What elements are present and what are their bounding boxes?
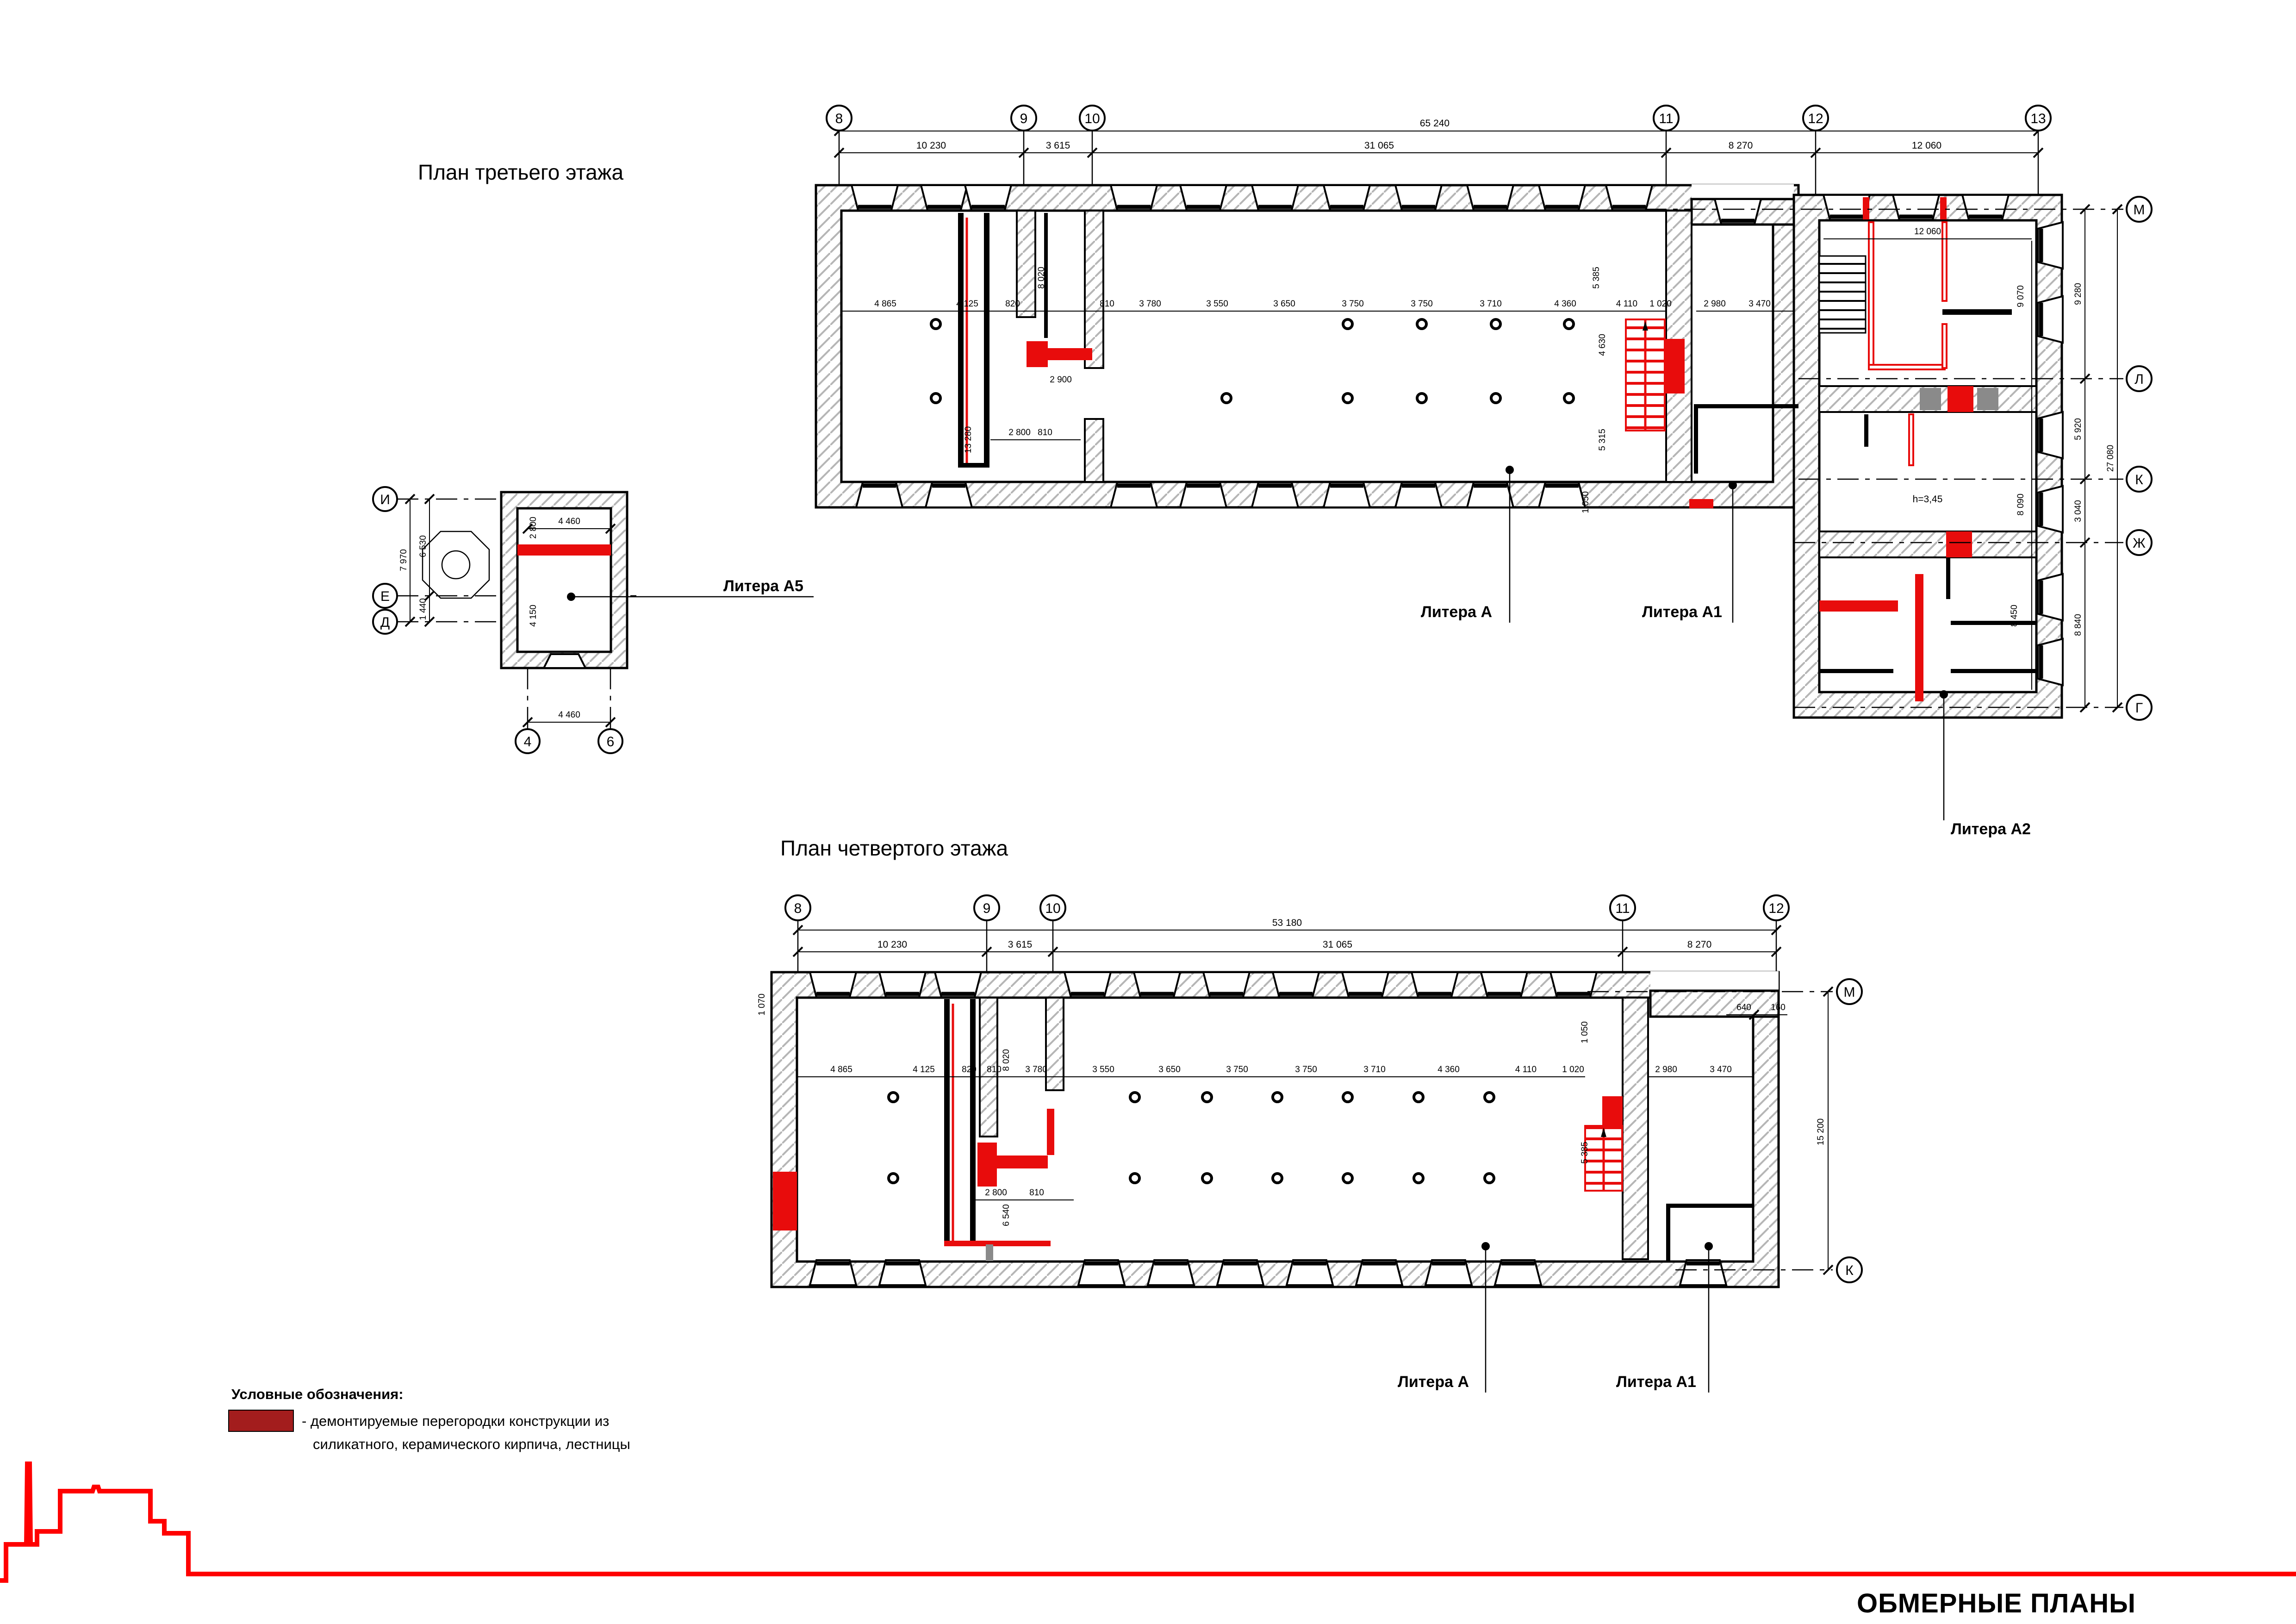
axis-bubble-label: И bbox=[380, 492, 390, 507]
axis-bubble-label: 6 bbox=[607, 734, 615, 750]
dim-text: 3 470 bbox=[1710, 1065, 1732, 1074]
dim-text: 3 750 bbox=[1295, 1065, 1317, 1074]
axis-bubble-label: 9 bbox=[1020, 111, 1028, 126]
dim-text: 640 bbox=[1736, 1003, 1751, 1012]
dim-text: 4 865 bbox=[874, 299, 896, 309]
dim-text: 3 750 bbox=[1342, 299, 1364, 309]
dim-text: 3 550 bbox=[1092, 1065, 1114, 1074]
demolition-wall bbox=[1027, 341, 1048, 367]
demolition-wall bbox=[1048, 348, 1092, 360]
drawing-sheet: План третьего этажа 65 240 10 230 3 615 … bbox=[0, 0, 2296, 1624]
measurement-plans-drawing: План третьего этажа 65 240 10 230 3 615 … bbox=[0, 0, 2296, 1624]
dim-text: 9 280 bbox=[2073, 283, 2083, 305]
dim-text: 4 865 bbox=[830, 1065, 852, 1074]
dim-text: 8 450 bbox=[2010, 605, 2019, 627]
dim-text: 1 050 bbox=[1581, 491, 1591, 513]
axis-bubble-label: 8 bbox=[835, 111, 843, 126]
dim-text: 4 110 bbox=[1515, 1065, 1537, 1074]
dim-text: 160 bbox=[1771, 1003, 1786, 1012]
axis-bubble-label: Г bbox=[2135, 700, 2143, 716]
axis-bubble-label: 9 bbox=[983, 901, 991, 916]
plan4-axis-bubbles-top: 8 9 10 11 12 bbox=[785, 895, 1789, 920]
axis-bubble-label: К bbox=[1845, 1263, 1854, 1278]
dim-text: 810 bbox=[1038, 428, 1052, 437]
dim-text: 65 240 bbox=[1420, 118, 1450, 129]
litera-a2-label: Литера А2 bbox=[1951, 820, 2031, 838]
axis-bubble-label: Е bbox=[380, 589, 390, 604]
dim-text: 3 650 bbox=[1158, 1065, 1181, 1074]
dim-text: 31 065 bbox=[1323, 939, 1352, 950]
dim-text: 820 bbox=[1005, 299, 1020, 309]
dim-text: 31 065 bbox=[1364, 140, 1394, 151]
dim-text: 4 460 bbox=[558, 517, 580, 526]
dim-text: 810 bbox=[1029, 1188, 1044, 1198]
dim-text: 10 230 bbox=[877, 939, 907, 950]
dim-text: 4 460 bbox=[558, 710, 580, 720]
demolition-wall bbox=[1602, 1096, 1623, 1126]
dim-text: 810 bbox=[1100, 299, 1114, 309]
dim-text: 3 550 bbox=[1206, 299, 1228, 309]
demolition-wall bbox=[1819, 600, 1898, 612]
plan3-walls bbox=[816, 184, 2062, 718]
gray-block bbox=[986, 1244, 993, 1261]
plan4-fourth-floor: План четвертого этажа 53 180 10 230 3 61… bbox=[757, 836, 1862, 1393]
plan3-title: План третьего этажа bbox=[418, 160, 623, 184]
chimney-octagon bbox=[423, 531, 489, 598]
dim-text: 27 080 bbox=[2106, 445, 2116, 472]
dim-text: 3 040 bbox=[2073, 500, 2083, 522]
legend-text: силикатного, керамического кирпича, лест… bbox=[313, 1436, 630, 1452]
axis-bubble-label: Л bbox=[2134, 372, 2144, 387]
dim-text: 13 280 bbox=[964, 426, 973, 453]
dim-text: 2 800 bbox=[1008, 428, 1031, 437]
dim-text: 3 470 bbox=[1748, 299, 1771, 309]
dim-text: 5 315 bbox=[1598, 429, 1607, 451]
legend-heading: Условные обозначения: bbox=[231, 1386, 404, 1402]
dim-text: 9 070 bbox=[2016, 285, 2026, 307]
dim-text: 5 920 bbox=[2073, 418, 2083, 440]
dim-text: 3 780 bbox=[1025, 1065, 1047, 1074]
demolition-wall bbox=[1689, 499, 1713, 508]
demolition-wall bbox=[944, 1241, 1051, 1246]
dim-text: 3 710 bbox=[1363, 1065, 1386, 1074]
axis-bubble-label: 11 bbox=[1659, 111, 1673, 126]
litera-a-label: Литера А bbox=[1421, 603, 1492, 621]
dim-text: 4 150 bbox=[529, 605, 538, 627]
axis-bubble-label: Д bbox=[380, 615, 390, 630]
dim-text: 3 780 bbox=[1139, 299, 1161, 309]
sheet-title: ОБМЕРНЫЕ ПЛАНЫ bbox=[1857, 1588, 2136, 1618]
demolition-wall bbox=[1915, 574, 1923, 701]
dim-text: 1 020 bbox=[1649, 299, 1672, 309]
plan3-third-floor: План третьего этажа 65 240 10 230 3 615 … bbox=[418, 106, 2152, 838]
demolition-wall bbox=[773, 1172, 797, 1230]
dim-text: 8 270 bbox=[1729, 140, 1753, 151]
demolition-wall bbox=[1946, 531, 1972, 557]
dim-text: 8 090 bbox=[2016, 493, 2026, 516]
dim-text: 3 710 bbox=[1480, 299, 1502, 309]
dim-text: 3 615 bbox=[1046, 140, 1070, 151]
height-note: h=3,45 bbox=[1913, 494, 1943, 505]
dim-text: 8 020 bbox=[1002, 1049, 1011, 1071]
dim-text: 6 530 bbox=[418, 535, 428, 557]
plan4-title: План четвертого этажа bbox=[780, 836, 1008, 860]
litera-a-label: Литера А bbox=[1398, 1373, 1469, 1391]
dim-text: 2 800 bbox=[985, 1188, 1007, 1198]
axis-bubble-label: 8 bbox=[794, 901, 802, 916]
dim-text: 3 615 bbox=[1008, 939, 1033, 950]
dim-text: 3 650 bbox=[1273, 299, 1295, 309]
dim-text: 8 020 bbox=[1037, 267, 1046, 289]
plan4-top-dimensions: 53 180 10 230 3 615 31 065 8 270 bbox=[793, 918, 1781, 956]
demolition-wall bbox=[517, 544, 611, 556]
demolition-wall bbox=[1665, 339, 1685, 394]
dim-text: 8 270 bbox=[1687, 939, 1712, 950]
dim-text: 3 750 bbox=[1226, 1065, 1248, 1074]
dim-text: 4 630 bbox=[1598, 334, 1607, 356]
dim-text: 4 360 bbox=[1554, 299, 1576, 309]
demolition-wall bbox=[1948, 386, 1973, 412]
dim-text: 12 060 bbox=[1912, 140, 1941, 151]
axis-bubble-label: 10 bbox=[1084, 111, 1100, 126]
litera-a1-label: Литера А1 bbox=[1616, 1373, 1696, 1391]
dim-text: 2 980 bbox=[1704, 299, 1726, 309]
dim-text: 8 840 bbox=[2073, 614, 2083, 636]
dim-text: 2 800 bbox=[529, 517, 538, 539]
dim-text: 6 540 bbox=[1002, 1204, 1011, 1226]
dim-text: 10 230 bbox=[916, 140, 946, 151]
demolition-wall bbox=[977, 1143, 997, 1187]
dim-text: 1 020 bbox=[1562, 1065, 1584, 1074]
legend-text: - демонтируемые перегородки конструкции … bbox=[302, 1413, 609, 1429]
dim-text: 7 970 bbox=[399, 549, 409, 571]
gray-block bbox=[1920, 388, 1941, 410]
stair bbox=[1819, 256, 1866, 333]
axis-bubble-label: 12 bbox=[1768, 901, 1784, 916]
axis-bubble-label: М bbox=[1844, 985, 1855, 1000]
demolition-wall bbox=[1047, 1109, 1054, 1155]
plan4-walls bbox=[772, 971, 1779, 1287]
demolition-wall bbox=[1863, 197, 1869, 219]
sheet-footer: ОБМЕРНЫЕ ПЛАНЫ bbox=[0, 1464, 2296, 1618]
legend-swatch bbox=[229, 1410, 293, 1431]
axis-bubble-label: 4 bbox=[524, 734, 532, 750]
demolition-wall bbox=[997, 1156, 1048, 1168]
dim-text: 4 110 bbox=[1616, 299, 1637, 309]
axis-bubble-label: 13 bbox=[2030, 111, 2046, 126]
axis-bubble-label: 12 bbox=[1808, 111, 1823, 126]
dim-text: 1 440 bbox=[418, 598, 428, 620]
dim-text: 810 bbox=[987, 1065, 1002, 1074]
legend: Условные обозначения: - демонтируемые пе… bbox=[229, 1386, 630, 1452]
dim-text: 3 750 bbox=[1411, 299, 1433, 309]
axis-bubble-label: М bbox=[2134, 202, 2145, 218]
dim-text: 1 050 bbox=[1580, 1021, 1590, 1043]
dim-text: 2 980 bbox=[1655, 1065, 1677, 1074]
dim-text: 4 360 bbox=[1437, 1065, 1460, 1074]
door-opening bbox=[544, 654, 585, 668]
dim-text: 1 070 bbox=[757, 993, 767, 1016]
dim-text: 820 bbox=[962, 1065, 977, 1074]
dim-text: 5 385 bbox=[1592, 267, 1601, 289]
axis-bubble-label: Ж bbox=[2133, 536, 2146, 551]
dim-text: 5 385 bbox=[1580, 1142, 1590, 1164]
litera-a1-label: Литера А1 bbox=[1642, 603, 1722, 621]
gray-block bbox=[1977, 388, 1998, 410]
dim-text: 2 900 bbox=[1050, 375, 1072, 385]
demolition-wall bbox=[1940, 197, 1947, 219]
axis-bubble-label: 11 bbox=[1615, 901, 1630, 916]
dim-text: 15 200 bbox=[1816, 1118, 1826, 1145]
dim-text: 12 060 bbox=[1914, 227, 1941, 237]
dim-text: 4 125 bbox=[956, 299, 978, 309]
elevation-profile bbox=[0, 1464, 2296, 1580]
litera-a5-label: Литера А5 bbox=[723, 577, 803, 595]
axis-bubble-label: К bbox=[2135, 472, 2143, 487]
axis-bubble-label: 10 bbox=[1045, 901, 1060, 916]
plan-a5: И Е Д 7 970 6 530 1 440 4 460 2 800 4 15… bbox=[373, 487, 814, 753]
dim-text: 4 125 bbox=[913, 1065, 935, 1074]
dim-text: 53 180 bbox=[1272, 918, 1302, 928]
